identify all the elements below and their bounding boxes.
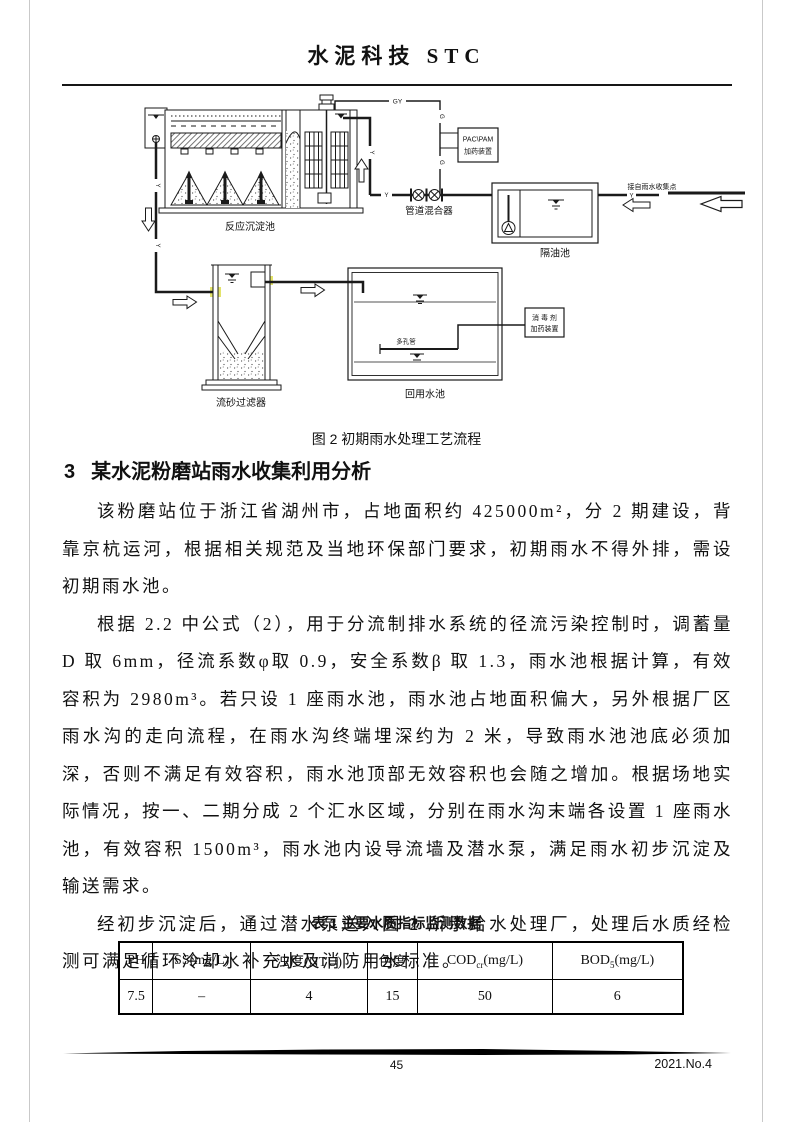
label-pipe-mixer: 管道混合器 bbox=[405, 205, 453, 217]
reaction-sedimentation-tank: 反应沉淀池 bbox=[145, 95, 363, 233]
section-title: 某水泥粉磨站雨水收集利用分析 bbox=[91, 461, 371, 483]
right-arrow bbox=[173, 296, 197, 309]
table-header-cell: 色度 bbox=[367, 942, 417, 980]
label-pipe-gy: GY bbox=[393, 99, 403, 106]
left-arrow-small bbox=[623, 199, 650, 212]
label-disinfectant-device: 加药装置 bbox=[531, 324, 559, 333]
left-arrow-large bbox=[701, 197, 742, 212]
table-caption: 表 1 主要水质指标监测数据 bbox=[0, 913, 793, 933]
label-pipe-y: Y bbox=[154, 183, 160, 187]
footer-rule bbox=[63, 1047, 731, 1057]
process-flow-diagram: 反应沉淀池 GY G G PAC\PAM 加药装置 Y bbox=[135, 93, 755, 433]
paragraph: 根据 2.2 中公式（2），用于分流制排水系统的径流污染控制时，调蓄量 D 取 … bbox=[62, 606, 733, 906]
label-pipe-y: Y bbox=[154, 243, 160, 247]
label-pipe-y: Y bbox=[368, 150, 374, 154]
table-data-row: 7.5 – 4 15 50 6 bbox=[119, 980, 683, 1015]
table-header-cell: 浊度(NTU) bbox=[251, 942, 368, 980]
label-inlet-note: 接自雨水收集点 bbox=[628, 182, 677, 191]
label-porous-pipe: 多孔管 bbox=[396, 337, 416, 346]
section-heading: 3某水泥粉磨站雨水收集利用分析 bbox=[64, 455, 371, 484]
journal-header-title: 水泥科技 STC bbox=[0, 40, 793, 70]
label-reuse-tank: 回用水池 bbox=[405, 388, 445, 401]
journal-page: 水泥科技 STC bbox=[0, 0, 793, 1122]
table-cell: 6 bbox=[552, 980, 683, 1015]
label-reaction-tank: 反应沉淀池 bbox=[225, 220, 275, 233]
sand-filter: 流砂过滤器 bbox=[202, 265, 281, 409]
pipe-mixer-symbol bbox=[411, 189, 442, 202]
page-left-edge bbox=[29, 0, 30, 1122]
issue-number: 2021.No.4 bbox=[654, 1057, 712, 1071]
water-level-icon bbox=[225, 274, 239, 283]
table-header-cell: PH bbox=[119, 942, 153, 980]
process-flow-svg: 反应沉淀池 GY G G PAC\PAM 加药装置 Y bbox=[135, 93, 755, 433]
body-text: 该粉磨站位于浙江省湖州市，占地面积约 425000m²，分 2 期建设，背靠京杭… bbox=[62, 493, 733, 981]
label-pac-pam: PAC\PAM bbox=[463, 137, 494, 144]
down-arrow bbox=[142, 208, 155, 231]
pac-pam-dosing-box bbox=[458, 128, 498, 162]
label-disinfectant: 消 毒 剂 bbox=[532, 313, 557, 322]
table-cell: 50 bbox=[418, 980, 552, 1015]
paragraph: 该粉磨站位于浙江省湖州市，占地面积约 425000m²，分 2 期建设，背靠京杭… bbox=[62, 493, 733, 606]
page-right-edge bbox=[762, 0, 763, 1122]
figure-caption: 图 2 初期雨水处理工艺流程 bbox=[0, 429, 793, 449]
oil-separation-tank: 隔油池 bbox=[492, 183, 598, 260]
header-rule bbox=[62, 84, 732, 86]
label-pac-pam-device: 加药装置 bbox=[464, 147, 492, 156]
table-cell: – bbox=[153, 980, 251, 1015]
table-header-row: PH SS(mg/L) 浊度(NTU) 色度 CODcr(mg/L) BOD5(… bbox=[119, 942, 683, 980]
section-number: 3 bbox=[64, 461, 75, 483]
label-pipe-g: G bbox=[438, 160, 444, 165]
reuse-water-tank: 多孔管 消 毒 剂 加药装置 回用水池 bbox=[348, 268, 564, 401]
label-pipe-g: G bbox=[438, 114, 444, 119]
table-cell: 4 bbox=[251, 980, 368, 1015]
table-header-cell: CODcr(mg/L) bbox=[418, 942, 552, 980]
label-oil-tank: 隔油池 bbox=[540, 247, 570, 260]
table-cell: 15 bbox=[367, 980, 417, 1015]
label-sand-filter: 流砂过滤器 bbox=[216, 396, 266, 409]
label-pipe-y: Y bbox=[384, 193, 388, 199]
water-quality-table: PH SS(mg/L) 浊度(NTU) 色度 CODcr(mg/L) BOD5(… bbox=[118, 941, 684, 1015]
right-arrow bbox=[301, 284, 325, 297]
table-header-cell: SS(mg/L) bbox=[153, 942, 251, 980]
inlet-pipework: 接自雨水收集点 Y bbox=[598, 182, 745, 212]
table-cell: 7.5 bbox=[119, 980, 153, 1015]
table-header-cell: BOD5(mg/L) bbox=[552, 942, 683, 980]
